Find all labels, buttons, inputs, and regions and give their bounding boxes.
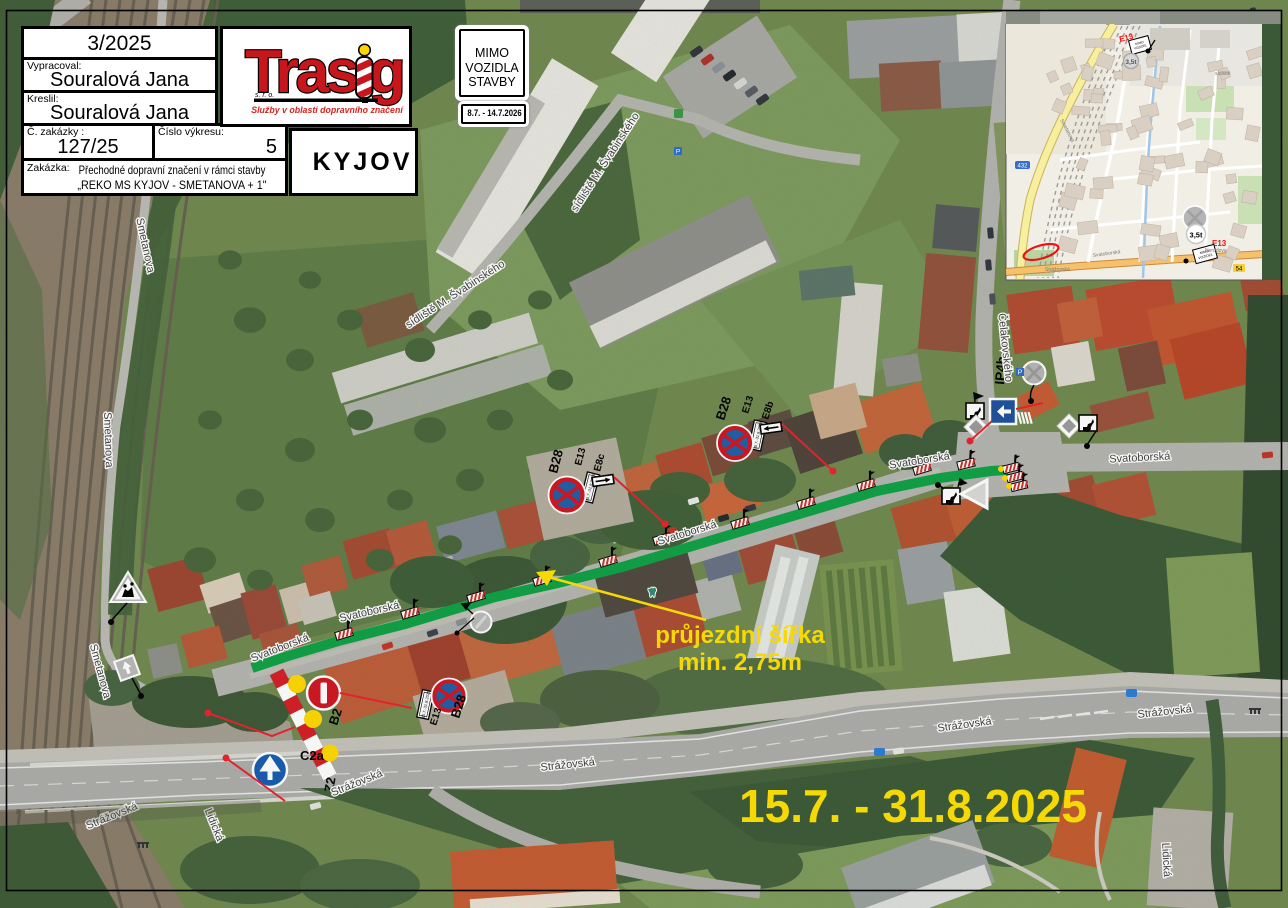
svg-text:3,5t: 3,5t (1190, 231, 1203, 240)
svg-text:432: 432 (1017, 164, 1028, 170)
svg-text:Služby v oblasti dopravního zn: Služby v oblasti dopravního značení (251, 105, 404, 115)
svg-text:Nerudova: Nerudova (1205, 248, 1227, 254)
svg-text:Strážovská: Strážovská (1045, 267, 1070, 273)
svg-text:3,5t: 3,5t (1125, 59, 1137, 66)
svg-text:g: g (369, 38, 406, 105)
svg-text:54: 54 (1236, 267, 1243, 273)
svg-text:s. r. o.: s. r. o. (255, 92, 274, 99)
svg-text:sídliště: sídliště (1215, 71, 1231, 77)
